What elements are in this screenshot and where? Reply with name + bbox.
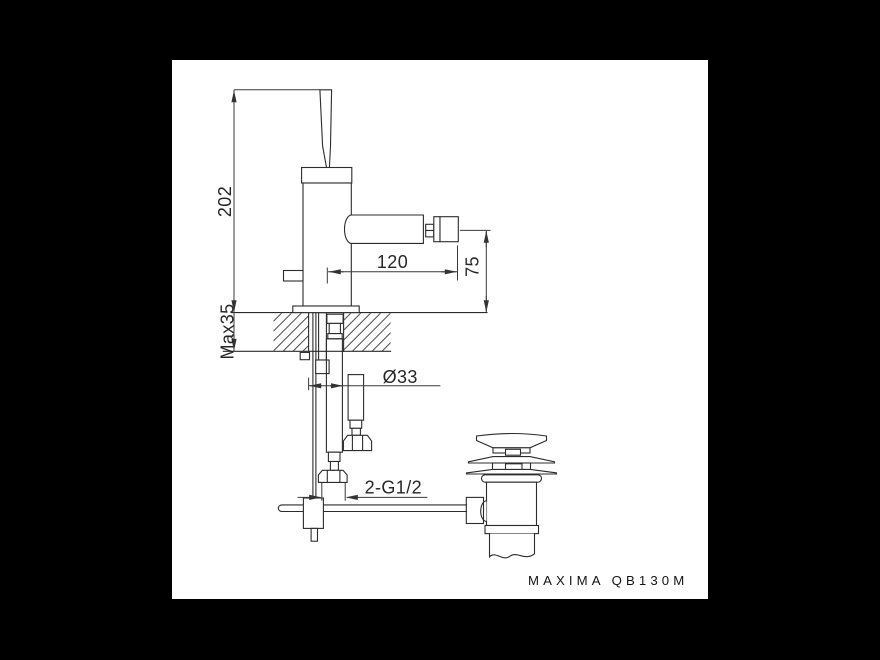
hose-left-top-fitting	[327, 314, 343, 323]
dim-total-height-label: 202	[215, 186, 235, 217]
dim-supply-thread-label: 2-G1/2	[365, 478, 422, 498]
drawing-sheet	[172, 60, 708, 599]
spout-connector-lower	[426, 231, 434, 237]
aerator-ring	[434, 217, 440, 242]
dim-spout-reach-label: 120	[377, 252, 408, 272]
faucet-base-plate	[293, 306, 359, 313]
dim-mounting-hole-label: Ø33	[383, 367, 418, 387]
drain-coupling-band	[485, 526, 539, 534]
model-label: MAXIMA QB130M	[528, 573, 688, 588]
hose-right-ferrule-2	[352, 428, 360, 435]
technical-drawing: 202 Max35 120 75	[0, 0, 880, 660]
counter-hatch-right	[344, 313, 391, 351]
dim-max-deck-thickness: Max35	[218, 303, 238, 359]
dim-max-deck-thickness-label: Max35	[218, 303, 238, 359]
drain-body	[487, 482, 537, 525]
drain-tailpipe	[490, 534, 535, 558]
clamp-stub	[311, 528, 317, 541]
hose-left-ferrule-2	[330, 462, 338, 471]
drain-cap	[477, 434, 547, 448]
counter-hatch-left	[274, 313, 309, 351]
hose-left-collar	[328, 334, 342, 339]
hose-right-nut	[343, 435, 371, 450]
hose-left-nut	[318, 470, 347, 482]
hose-left-ferrule	[328, 452, 340, 461]
drain-cap-key	[506, 449, 521, 455]
faucet-body	[303, 183, 351, 306]
faucet-spout	[345, 215, 424, 243]
drain-flange	[482, 475, 542, 482]
rod-clamp-block	[303, 498, 323, 528]
dim-spout-height-label: 75	[463, 256, 483, 277]
faucet-side-stub	[284, 271, 304, 282]
faucet-cap	[302, 168, 352, 184]
page-background: 202 Max35 120 75	[0, 0, 880, 660]
hose-right-ferrule	[350, 420, 362, 428]
mounting-nut	[316, 360, 329, 374]
spout-connector-upper	[426, 224, 434, 230]
hose-left-neck	[329, 323, 340, 333]
aerator-tip	[440, 217, 458, 242]
